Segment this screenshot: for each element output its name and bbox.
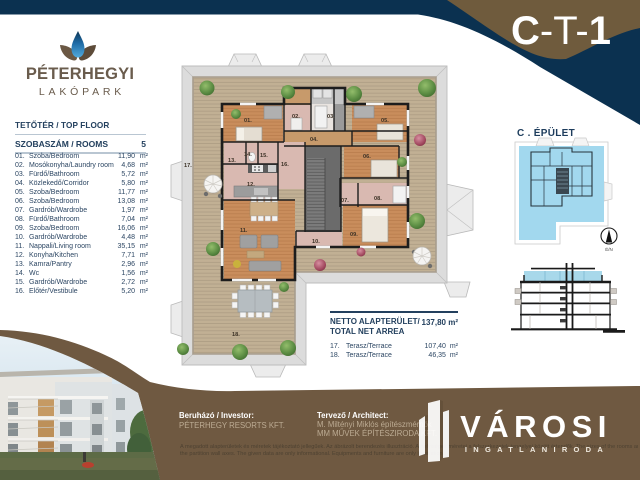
svg-text:07.: 07.: [341, 198, 349, 204]
svg-text:05.: 05.: [381, 118, 389, 124]
svg-text:04.: 04.: [310, 137, 318, 143]
svg-text:INGATLANIRODA: INGATLANIRODA: [465, 445, 609, 454]
svg-text:06.: 06.: [363, 154, 371, 160]
svg-text:10.: 10.: [312, 239, 320, 245]
svg-text:É/N: É/N: [605, 246, 613, 252]
svg-text:18.: 18.: [232, 332, 240, 338]
svg-text:13.: 13.: [228, 158, 236, 164]
svg-text:15.: 15.: [260, 153, 268, 159]
svg-text:01.: 01.: [244, 118, 252, 124]
svg-text:08.: 08.: [374, 196, 382, 202]
svg-text:16.: 16.: [281, 162, 289, 168]
svg-text:11.: 11.: [240, 228, 248, 234]
svg-text:14.: 14.: [244, 152, 252, 158]
svg-text:17.: 17.: [184, 163, 192, 169]
svg-text:12.: 12.: [247, 182, 255, 188]
svg-text:09.: 09.: [350, 232, 358, 238]
svg-text:02.: 02.: [292, 114, 300, 120]
svg-text:VÁROSI: VÁROSI: [460, 409, 612, 444]
svg-text:03.: 03.: [327, 114, 335, 120]
